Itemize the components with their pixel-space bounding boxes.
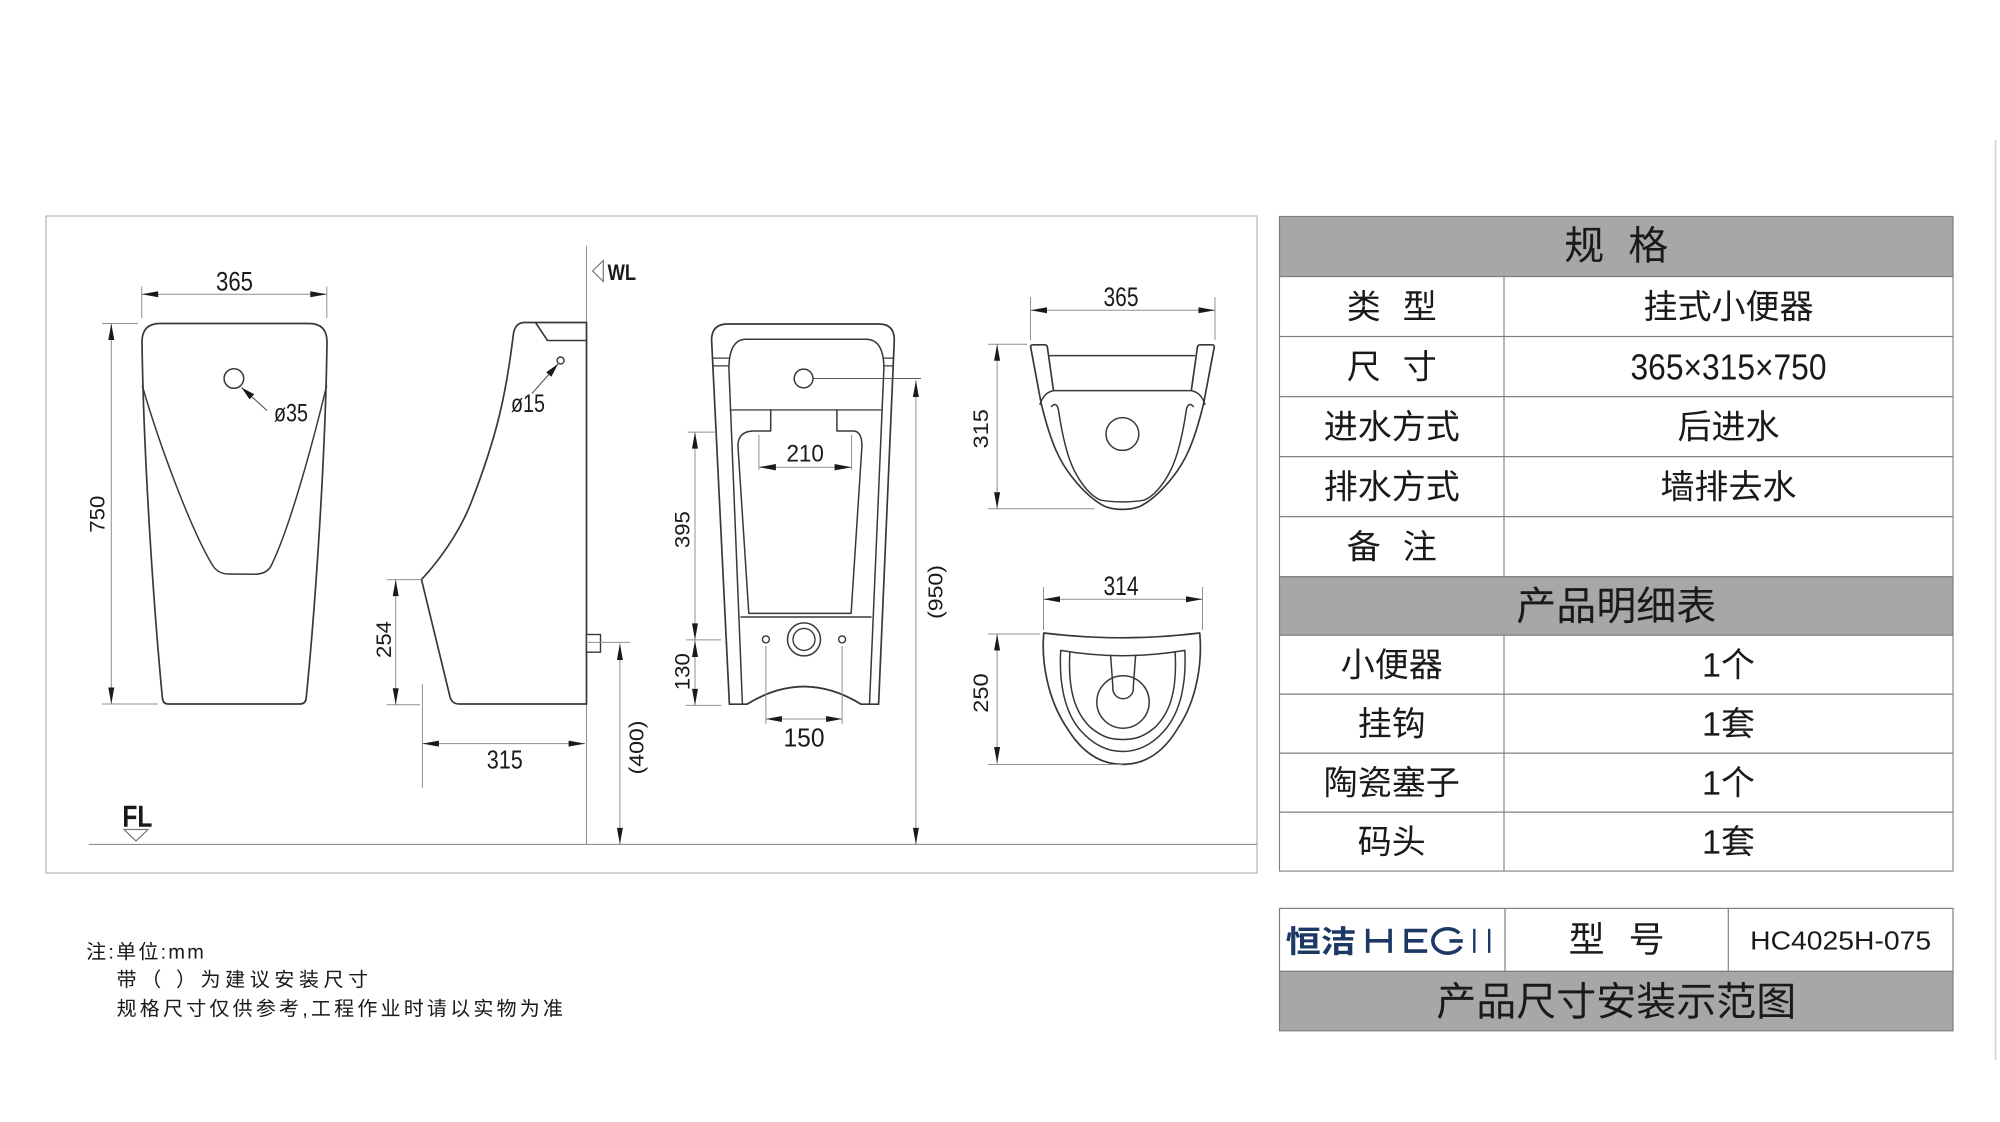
svg-text:250: 250 xyxy=(970,673,993,713)
svg-text:(950): (950) xyxy=(925,565,948,619)
svg-text:210: 210 xyxy=(786,441,824,468)
svg-text:315: 315 xyxy=(970,409,993,449)
svg-text:150: 150 xyxy=(784,723,825,753)
svg-text:ø35: ø35 xyxy=(274,400,308,428)
svg-text:ø15: ø15 xyxy=(511,390,545,418)
svg-text:(400): (400) xyxy=(626,721,649,775)
svg-text:750: 750 xyxy=(87,496,110,533)
svg-text:365×315×750: 365×315×750 xyxy=(1631,347,1827,388)
svg-text:365: 365 xyxy=(1104,282,1139,312)
svg-text:395: 395 xyxy=(672,511,695,548)
svg-text:254: 254 xyxy=(373,621,396,658)
svg-text:365: 365 xyxy=(216,267,253,297)
svg-text:HC4025H-075: HC4025H-075 xyxy=(1750,926,1931,956)
svg-text:315: 315 xyxy=(487,745,523,775)
svg-text:314: 314 xyxy=(1104,571,1139,601)
svg-text:130: 130 xyxy=(672,653,695,690)
